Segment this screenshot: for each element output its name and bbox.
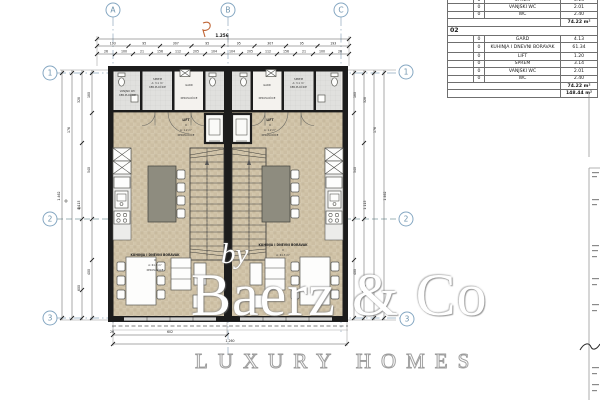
table-row: 0KUHINJA I DNEVNI BORAVAK61.34 (448, 43, 598, 53)
svg-text:A: 61.3 m²: A: 61.3 m² (148, 263, 162, 267)
kitchen-counter-left (113, 148, 131, 240)
svg-text:600: 600 (363, 285, 367, 291)
area-summary-table: 0SPREM3.14 0VANJSKI WC2.01 0WC2.40 74.22… (447, 0, 598, 98)
table-row: 0LIFT1.20 (448, 53, 598, 60)
svg-text:95: 95 (142, 42, 146, 46)
svg-text:21: 21 (302, 50, 306, 54)
svg-text:26: 26 (104, 50, 108, 54)
svg-text:100: 100 (121, 50, 127, 54)
table-row: 0VANJSKI WC2.01 (448, 4, 598, 11)
grid-row-1-right: 1 (404, 68, 409, 77)
table-row: 0VANJSKI WC2.01 (448, 68, 598, 75)
dining-set-right (291, 257, 339, 305)
svg-text:1.462: 1.462 (57, 191, 61, 200)
svg-text:205: 205 (247, 50, 253, 54)
svg-text:193: 193 (330, 42, 336, 46)
svg-text:112: 112 (175, 50, 181, 54)
svg-text:156: 156 (157, 50, 163, 54)
table-row: 0SPREM3.14 (448, 60, 598, 67)
svg-text:307: 307 (173, 42, 179, 46)
room-label-sprem: SPREM (153, 77, 162, 81)
svg-text:156: 156 (283, 50, 289, 54)
svg-text:A: 1.2 m²: A: 1.2 m² (180, 128, 192, 132)
title-block-sliver (580, 92, 600, 400)
grid-row-3-right: 3 (405, 315, 410, 324)
svg-text:112: 112 (265, 50, 271, 54)
svg-text:328: 328 (363, 97, 367, 103)
room-label-gard: GARD (185, 83, 193, 87)
terrace-edge (112, 326, 348, 330)
svg-text:1.115: 1.115 (363, 200, 367, 209)
svg-text:180: 180 (87, 92, 91, 98)
svg-text:180: 180 (353, 92, 357, 98)
svg-text:176: 176 (373, 127, 377, 133)
grid-row-2-right: 2 (404, 215, 409, 224)
table-row: 0WC2.40 (448, 11, 598, 18)
dimension-chain-left: 180 328 176 540 1.115 600 400 1.462 (57, 70, 108, 320)
table-row: 0WC2.40 (448, 75, 598, 82)
table-subtotal-row: 74.22 m² (448, 83, 598, 90)
table-row: 0GARD4.13 (448, 36, 598, 43)
dim-bottom-tick: 26 (110, 330, 114, 334)
grid-col-a: A (110, 6, 116, 15)
svg-text:21: 21 (140, 50, 144, 54)
svg-text:400: 400 (87, 269, 91, 275)
svg-text:600: 600 (77, 285, 81, 291)
signature-scribble (580, 344, 600, 350)
room-label-lift-right: LIFT (266, 118, 274, 122)
dimension-chain-top: 1.256 193 95 307 95 95 307 95 193 26 100… (95, 33, 351, 66)
grid-col-b: B (225, 6, 230, 15)
svg-text:95: 95 (237, 42, 241, 46)
svg-text:104: 104 (229, 50, 235, 54)
room-label-vanjski-wc: VANJSKI WC (120, 89, 136, 93)
dim-top-total: 1.256 (215, 33, 228, 38)
svg-text:A: 61.3 m²: A: 61.3 m² (276, 253, 290, 257)
dim-bottom-half: 602 (167, 330, 173, 334)
svg-text:540: 540 (87, 167, 91, 173)
svg-text:205: 205 (193, 50, 199, 54)
svg-text:A: 3.1 m²: A: 3.1 m² (152, 81, 164, 85)
room-label-kitchen-left: KUHINJA I DNEVNI BORAVAK (130, 253, 180, 257)
grid-row-1-left: 1 (48, 69, 53, 78)
table-grandtotal-row: 148.44 m² (448, 90, 598, 97)
floorplan-sheet: VANJSKI WC KER.PLOČICE SPREM A: 3.1 m² K… (0, 0, 600, 400)
svg-text:A: 1.2 m²: A: 1.2 m² (264, 128, 276, 132)
svg-text:540: 540 (353, 167, 357, 173)
room-label-gard-right: GARD (263, 83, 271, 87)
svg-text:100: 100 (319, 50, 325, 54)
lift-shaft-right (232, 114, 251, 143)
svg-text:104: 104 (211, 50, 217, 54)
svg-text:1.462: 1.462 (383, 191, 387, 200)
svg-text:A: 3.1 m²: A: 3.1 m² (293, 81, 305, 85)
table-section-header: 02 (448, 26, 598, 36)
dimension-chain-right: 180 328 176 540 1.115 600 400 1.462 (348, 70, 396, 320)
room-label-kitchen-right: KUHINJA I DNEVNI BORAVAK (258, 243, 308, 247)
svg-text:193: 193 (110, 42, 116, 46)
svg-text:95: 95 (205, 42, 209, 46)
svg-text:26: 26 (338, 50, 342, 54)
svg-text:176: 176 (67, 127, 71, 133)
lift-shaft-left (205, 114, 224, 143)
dim-bottom-total: 1.260 (225, 339, 234, 343)
table-subtotal-row: 74.22 m² (448, 19, 598, 26)
dim-ticks-top (95, 37, 351, 56)
room-label-lift-left: LIFT (182, 118, 190, 122)
room-label-sprem-right: SPREM (294, 77, 303, 81)
revision-mark (203, 22, 210, 37)
svg-text:307: 307 (267, 42, 273, 46)
grid-col-c: C (338, 6, 343, 15)
grid-row-3-left: 3 (48, 314, 53, 323)
kitchen-counter-right (325, 148, 343, 240)
grid-row-2-left: 2 (48, 215, 53, 224)
svg-text:400: 400 (353, 269, 357, 275)
svg-text:95: 95 (300, 42, 304, 46)
svg-text:328: 328 (77, 97, 81, 103)
